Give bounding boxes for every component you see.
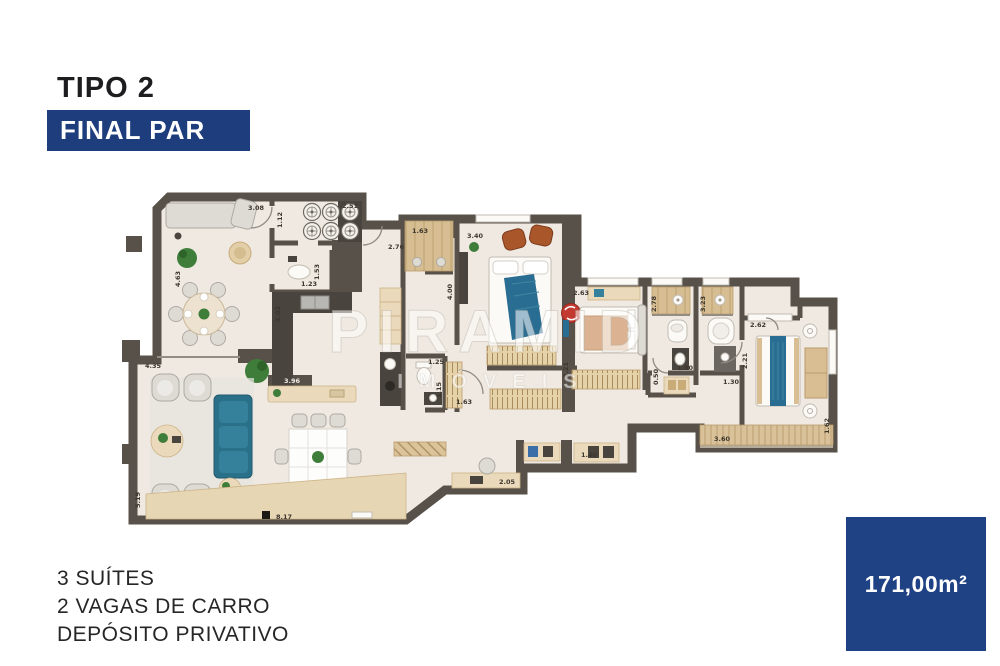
plant-leaf <box>179 250 187 258</box>
area-value: 171,00m² <box>865 571 967 598</box>
laptop <box>470 476 483 484</box>
sofa <box>214 395 252 478</box>
dryer <box>543 446 553 457</box>
bed-3 <box>756 336 800 406</box>
dimension-label: 1.53 <box>313 264 321 280</box>
pillar <box>122 444 136 464</box>
plant <box>177 248 197 268</box>
feature-list: 3 SUÍTES 2 VAGAS DE CARRO DEPÓSITO PRIVA… <box>57 565 289 649</box>
dimension-label: 3.40 <box>467 232 484 240</box>
pillar <box>122 340 140 362</box>
dimension-label: 1.12 <box>276 212 284 228</box>
dimension-label: 2.63 <box>573 289 589 297</box>
round-chair-seat <box>234 247 246 259</box>
dimension-label: 2.76 <box>388 243 405 251</box>
washer <box>528 446 538 457</box>
washbasin <box>288 265 310 279</box>
dimension-label: 1.63 <box>412 227 428 235</box>
dimension-label: 1.30 <box>723 378 740 386</box>
door-sill <box>352 512 372 518</box>
nightstand <box>803 404 817 418</box>
feature-suites: 3 SUÍTES <box>57 565 289 593</box>
watermark-line1: PIRAMID <box>328 298 651 365</box>
dimension-label: 1.23 <box>301 280 317 288</box>
nightstand <box>803 324 817 338</box>
terrace-sofa <box>166 203 236 228</box>
pillar <box>126 236 142 252</box>
floor-lamp <box>175 233 182 240</box>
marketing-page: TIPO 2 FINAL PAR <box>0 0 1000 666</box>
window <box>588 278 638 285</box>
dimension-label: 4.63 <box>174 271 182 287</box>
marker-box <box>262 511 270 519</box>
ledge <box>394 442 446 456</box>
tv-console <box>459 252 468 304</box>
dimension-label: 1.40 <box>581 451 598 459</box>
dimension-label: 3.08 <box>248 204 265 212</box>
dimension-label: 5.19 <box>134 491 142 508</box>
dimension-label: 2.51 <box>342 202 359 210</box>
dimension-label: 2.62 <box>750 321 766 329</box>
cooktop <box>385 381 395 391</box>
area-box: 171,00m² <box>846 517 986 651</box>
plant <box>469 242 479 252</box>
feature-parking: 2 VAGAS DE CARRO <box>57 593 289 621</box>
window <box>652 278 682 285</box>
dimension-label: 2.21 <box>741 352 749 369</box>
dimension-label: 8.17 <box>276 513 292 521</box>
dimension-label: 3.23 <box>699 296 707 312</box>
desk-chair <box>479 458 495 474</box>
plant-leaf <box>257 361 267 371</box>
dimension-label: 3.02 <box>274 306 282 322</box>
dimension-label: 4.35 <box>145 362 162 370</box>
plant <box>273 389 281 397</box>
plant <box>158 433 168 443</box>
feature-storage: DEPÓSITO PRIVATIVO <box>57 621 289 649</box>
window <box>703 278 729 285</box>
watermark-line2: IMÓVEIS <box>397 369 592 393</box>
dimension-label: 3.60 <box>714 435 731 443</box>
dimension-label: 1.30 <box>677 364 694 372</box>
dimension-label: 3.96 <box>284 377 301 385</box>
dimension-label: 2.05 <box>499 478 516 486</box>
dimension-label: 1.63 <box>456 398 472 406</box>
dimension-label: 0.50 <box>652 368 660 385</box>
window <box>748 314 792 321</box>
window <box>829 330 836 374</box>
dimension-label: 1.62 <box>823 418 831 434</box>
window <box>476 215 530 222</box>
